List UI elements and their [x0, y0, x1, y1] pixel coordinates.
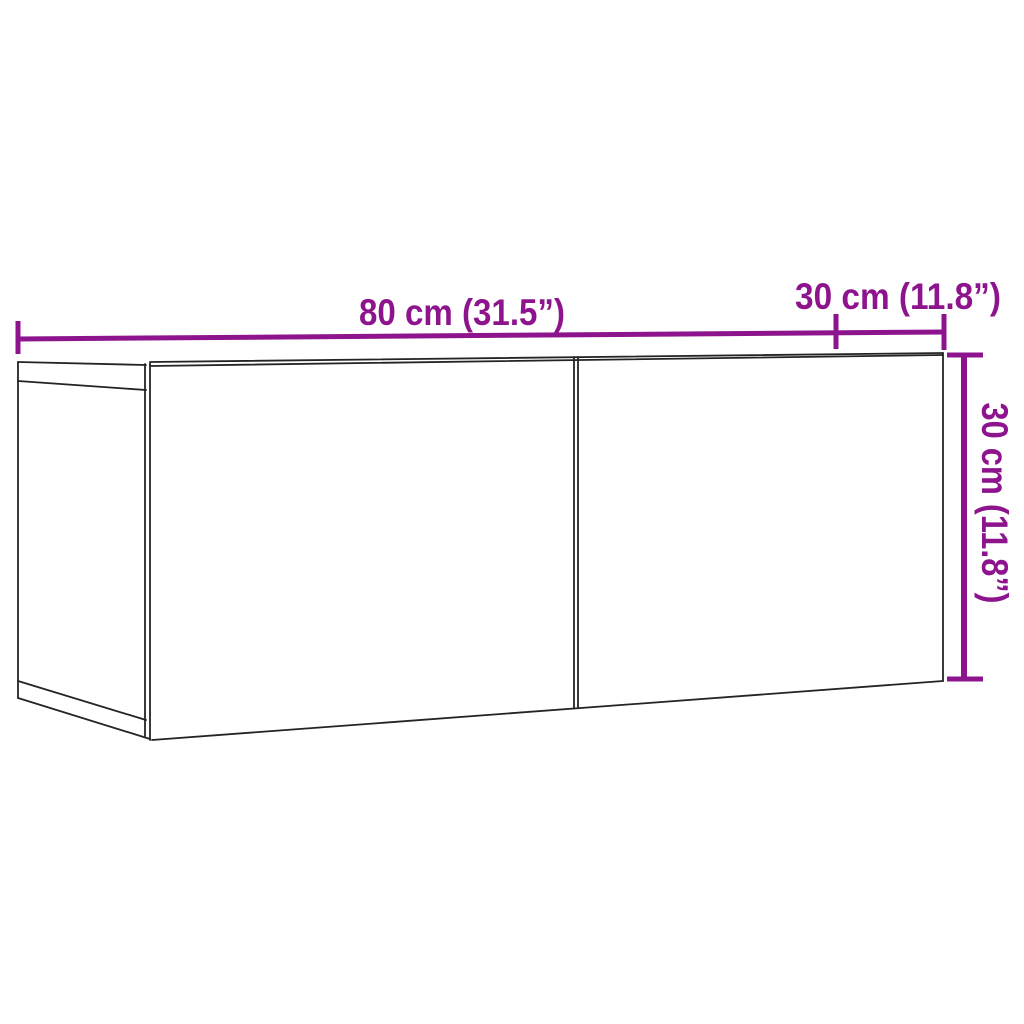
- cabinet-front-left-corner: [145, 363, 150, 740]
- diagram-canvas: 80 cm (31.5”) 30 cm (11.8”) 30 cm (11.8”…: [0, 0, 1024, 1024]
- top-dimension: 80 cm (31.5”) 30 cm (11.8”): [18, 276, 1001, 354]
- product-dimension-diagram: 80 cm (31.5”) 30 cm (11.8”) 30 cm (11.8”…: [0, 0, 1024, 1024]
- width-dimension-label: 80 cm (31.5”): [359, 292, 565, 333]
- side-panel-top-edge: [18, 362, 146, 365]
- cabinet-front-face: [150, 353, 943, 740]
- side-panel-bottom-band-top: [18, 681, 146, 720]
- cabinet-drawing: [18, 353, 943, 740]
- door-divider: [574, 357, 578, 708]
- right-dimension: 30 cm (11.8”): [947, 355, 1015, 679]
- top-dimension-line: [18, 332, 946, 339]
- side-panel-bottom-edge: [18, 698, 150, 739]
- front-bottom-edge: [152, 681, 943, 740]
- cabinet-side-panel: [18, 362, 150, 739]
- depth-dimension-label: 30 cm (11.8”): [795, 276, 1001, 317]
- side-panel-top-band-line: [18, 381, 146, 390]
- height-dimension-label: 30 cm (11.8”): [974, 403, 1015, 604]
